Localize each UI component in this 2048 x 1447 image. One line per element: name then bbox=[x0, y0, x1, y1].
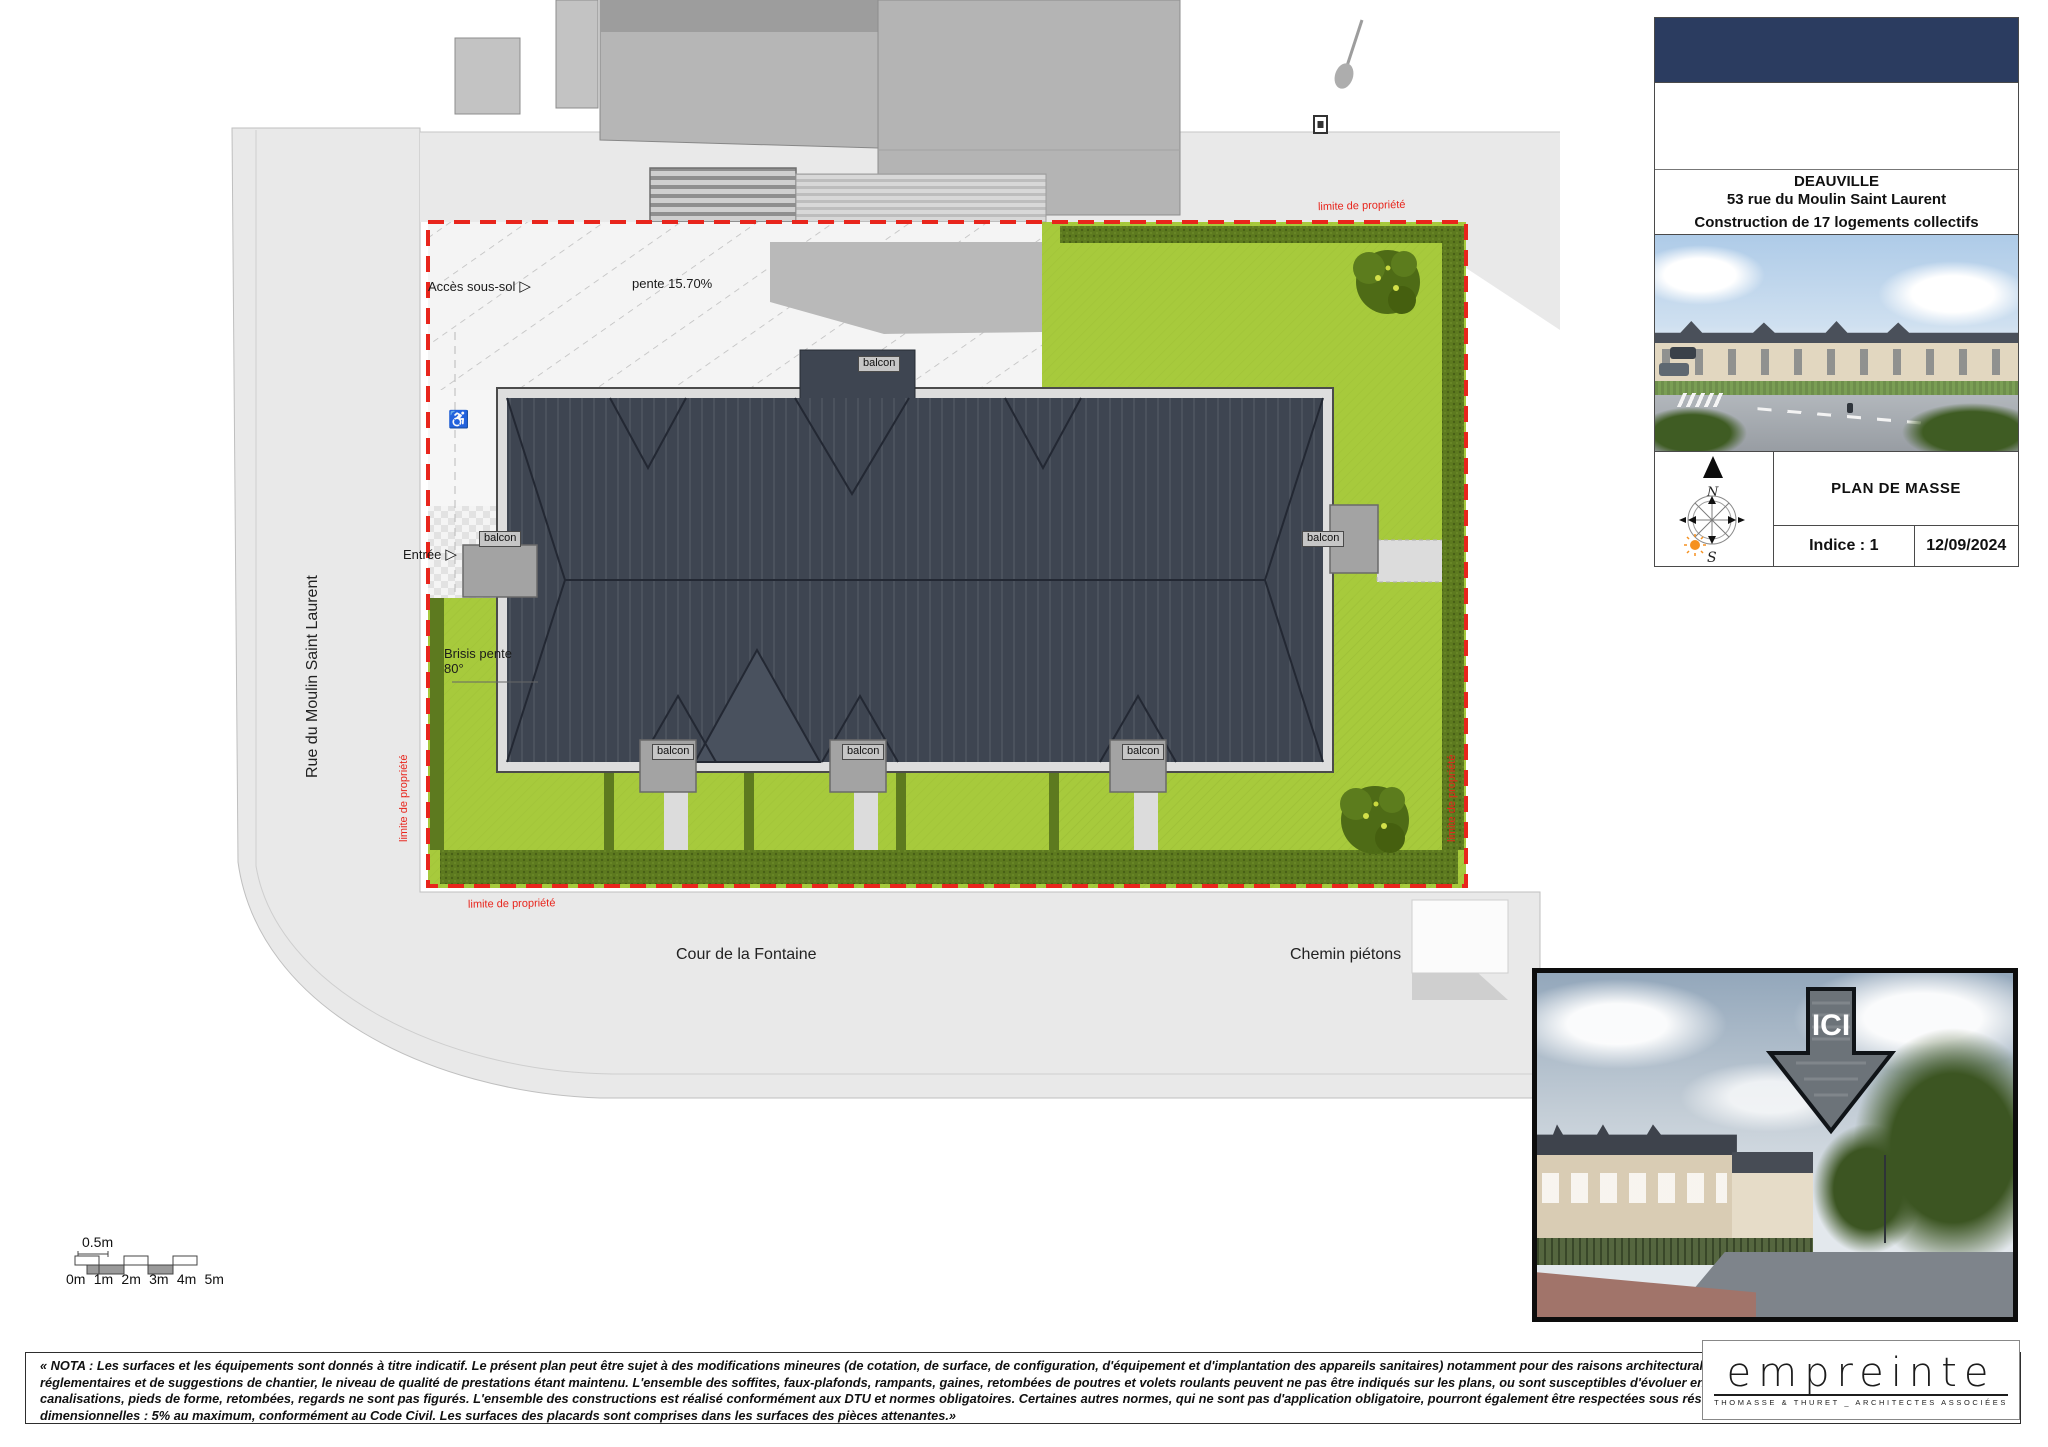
photo-balconies bbox=[1542, 1173, 1728, 1204]
ici-marker-label: ICI bbox=[1812, 1009, 1850, 1042]
basement-ramp bbox=[428, 222, 1042, 390]
project-identification: DEAUVILLE 53 rue du Moulin Saint Laurent… bbox=[1655, 170, 2018, 235]
logo-tagline: THOMASSE & THURET _ ARCHITECTES ASSOCIÉE… bbox=[1714, 1394, 2008, 1407]
label-entrance: Entrée▷ bbox=[403, 545, 457, 563]
label-street-bottom: Cour de la Fontaine bbox=[676, 946, 817, 964]
car bbox=[1659, 363, 1689, 376]
project-rendering bbox=[1655, 235, 2018, 452]
north-arrow-icon bbox=[1703, 456, 1723, 478]
revision-index: Indice : 1 bbox=[1774, 526, 1915, 566]
legal-note-text: « NOTA : Les surfaces et les équipements… bbox=[40, 1358, 1990, 1425]
label-property-limit: limite de propriété bbox=[398, 755, 410, 842]
logo-wordmark: empreinte bbox=[1727, 1354, 1996, 1392]
scale-tick-labels: 0m 1m 2m 3m 4m 5m bbox=[66, 1271, 224, 1287]
title-block-header-band bbox=[1655, 18, 2018, 83]
drawing-date: 12/09/2024 bbox=[1915, 526, 2018, 566]
label-property-limit: limite de propriété bbox=[1318, 199, 1406, 213]
label-pedestrian-path: Chemin piétons bbox=[1290, 946, 1401, 964]
label-balcony: balcon bbox=[1302, 531, 1344, 547]
title-block: DEAUVILLE 53 rue du Moulin Saint Laurent… bbox=[1654, 17, 2019, 567]
drawing-title: PLAN DE MASSE bbox=[1774, 452, 2018, 525]
label-street-left: Rue du Moulin Saint Laurent bbox=[304, 575, 322, 778]
label-ramp-slope: pente 15.70% bbox=[632, 276, 712, 291]
scale-half-meter-label: 0.5m bbox=[82, 1234, 113, 1250]
label-property-limit: limite de propriété bbox=[468, 897, 556, 911]
label-balcony: balcon bbox=[858, 356, 900, 372]
label-balcony: balcon bbox=[479, 531, 521, 547]
scale-tick: 1m bbox=[94, 1271, 113, 1287]
architect-logo: empreinte THOMASSE & THURET _ ARCHITECTE… bbox=[1702, 1340, 2020, 1420]
street-furniture-icon bbox=[1314, 116, 1327, 133]
title-block-blank-cell bbox=[1655, 83, 2018, 170]
tree bbox=[1813, 1124, 1923, 1254]
cloud bbox=[1878, 261, 2018, 327]
photo-lamppost bbox=[1884, 1155, 1886, 1243]
wheelchair-icon: ♿ bbox=[448, 410, 469, 430]
direction-arrow-icon: ▷ bbox=[519, 278, 531, 295]
label-balcony: balcon bbox=[1122, 744, 1164, 760]
rendering-crosswalk bbox=[1677, 393, 1727, 407]
label-basement-access: Accès sous-sol▷ bbox=[428, 277, 531, 295]
direction-arrow-icon: ▷ bbox=[445, 546, 457, 563]
label-roof-slope: Brisis pente 80° bbox=[444, 646, 512, 676]
scale-tick: 4m bbox=[177, 1271, 196, 1287]
scale-tick: 2m bbox=[121, 1271, 140, 1287]
site-photo-inset: ICI bbox=[1532, 968, 2018, 1322]
scale-tick: 0m bbox=[66, 1271, 85, 1287]
project-description: Construction de 17 logements collectifs bbox=[1655, 214, 2018, 231]
compass-south-label: S bbox=[1707, 550, 1717, 566]
project-city: DEAUVILLE bbox=[1655, 173, 2018, 190]
photo-building bbox=[1732, 1173, 1813, 1238]
new-building bbox=[497, 350, 1333, 772]
label-balcony: balcon bbox=[842, 744, 884, 760]
street-lamp-icon bbox=[1331, 20, 1362, 91]
label-property-limit: limite de propriété bbox=[1446, 755, 1458, 842]
label-balcony: balcon bbox=[652, 744, 694, 760]
site-plan-sheet: Accès sous-sol▷ pente 15.70% Entrée▷ Bri… bbox=[0, 0, 2048, 1447]
scale-tick: 3m bbox=[149, 1271, 168, 1287]
project-address: 53 rue du Moulin Saint Laurent bbox=[1655, 191, 2018, 208]
cyclist bbox=[1847, 403, 1853, 413]
ici-arrow: ICI bbox=[1756, 983, 1906, 1143]
rendering-windows bbox=[1662, 349, 2011, 375]
car bbox=[1670, 347, 1696, 359]
compass-rose: N S bbox=[1655, 452, 1774, 566]
pedestrian-pad bbox=[1412, 900, 1508, 973]
scale-tick: 5m bbox=[205, 1271, 224, 1287]
